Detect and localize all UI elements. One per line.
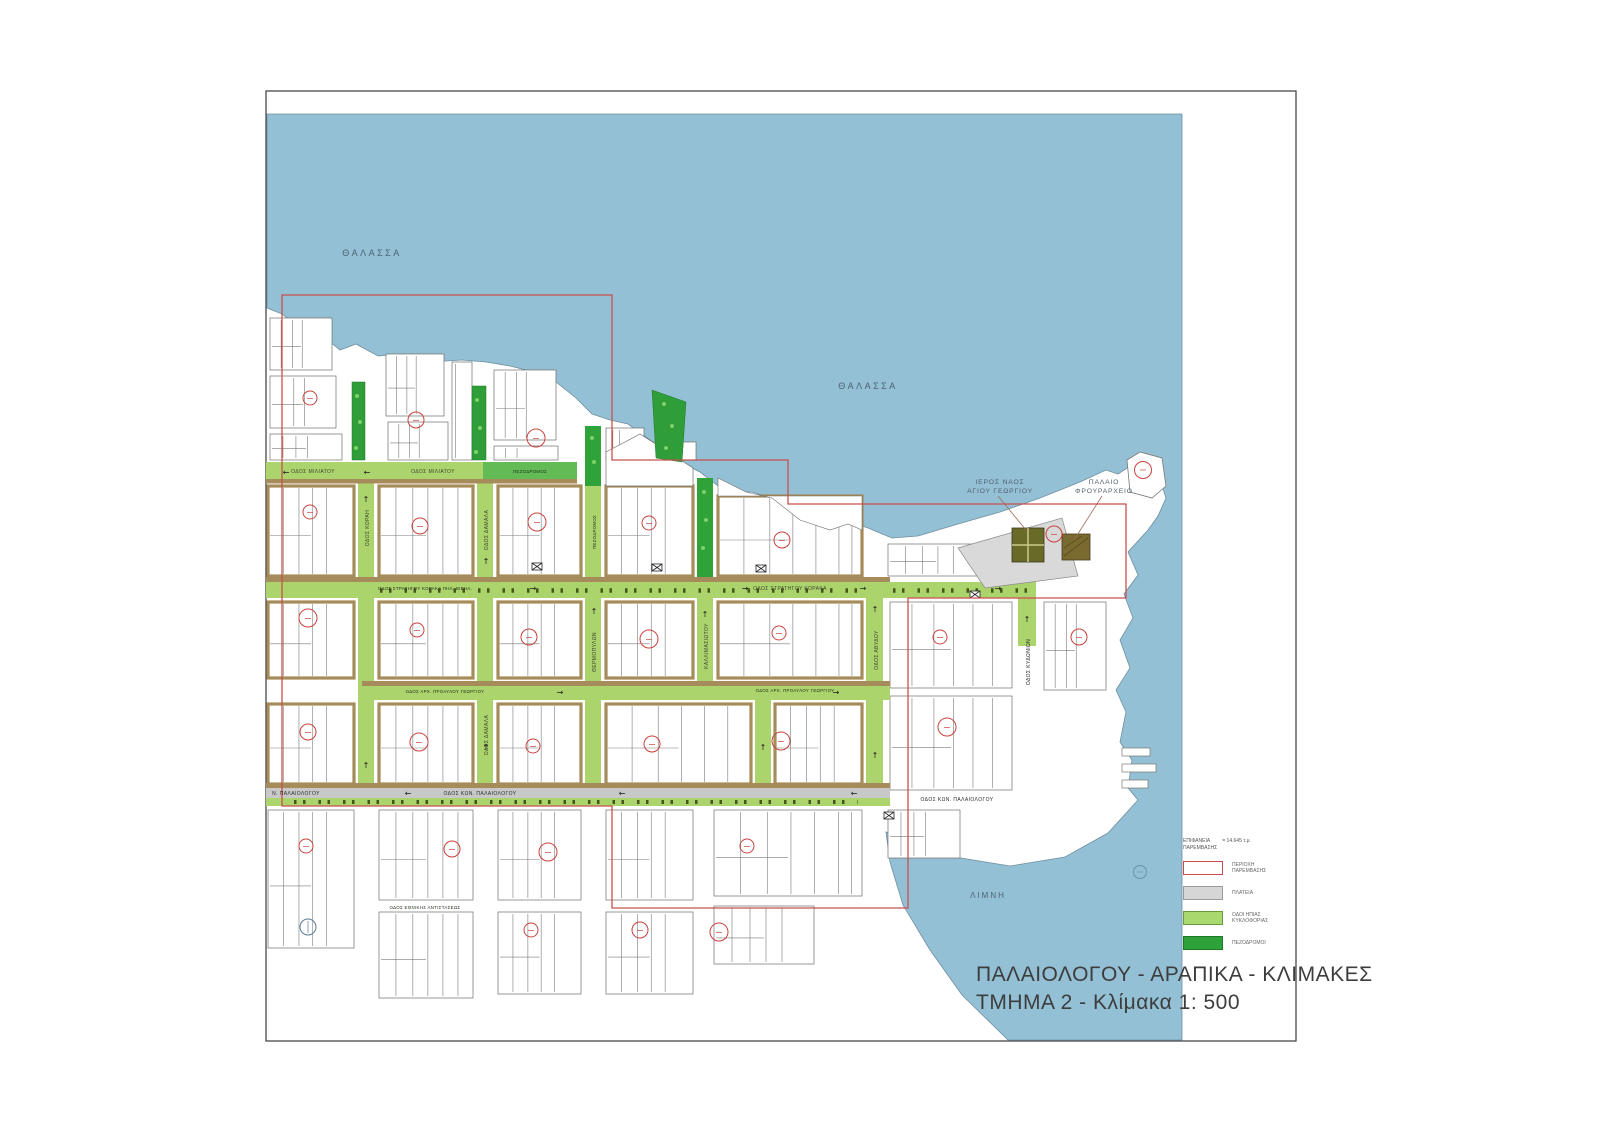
arrow-up-icon: ↑ [363,495,370,504]
arrow-up-icon: ↑ [591,607,598,616]
arrow-up-icon: ↑ [483,557,490,566]
street-label-palaiologou-left: Ν. ΠΑΛΑΙΟΛΟΓΟΥ [272,791,320,797]
street-label-damala-1: ΟΔΟΣ ΔΑΜΑΛΑ [484,510,490,551]
arrow-right-icon: → [557,688,564,697]
legend-swatch-plaza [1183,886,1223,900]
legend-label: ΠΑΡΕΜΒΑΣΗΣ [1232,868,1266,875]
guardhouse-label-line2: ΦΡΟΥΡΑΡΧΕΙΟ [1075,488,1133,495]
arrow-left-icon: ← [283,468,290,477]
arrow-left-icon: ← [619,789,626,798]
harbor-label: ΛΙΜΝΗ [970,891,1006,900]
drawing-title-line2: ΤΜΗΜΑ 2 - Κλίμακα 1: 500 [976,989,1373,1017]
street-label-kydonion: ΟΔΟΣ ΚΥΔΩΝΙΩΝ [1026,639,1032,685]
legend-header: ΕΠΙΦΑΝΕΙΑ ΠΑΡΕΜΒΑΣΗΣ = 14.645 τ.μ. [1183,838,1301,851]
street-label-georgiou-2: ΟΔΟΣ ΑΡΧ. ΠΡΟΑΥΛΟΥ ΓΕΩΡΓΙΟΥ [756,688,835,693]
legend: ΕΠΙΦΑΝΕΙΑ ΠΑΡΕΜΒΑΣΗΣ = 14.645 τ.μ. ΠΕΡΙΟ… [1183,838,1301,961]
arrow-up-icon: ↑ [872,605,879,614]
street-label-palaiologou-mid: ΟΔΟΣ ΚΩΝ. ΠΑΛΑΙΟΛΟΓΟΥ [444,791,517,797]
street-label-koraka-2: ΟΔΟΣ ΣΤΡΑΤΗΓΟΥ ΚΟΡΑΚΑ [753,586,827,592]
legend-swatch-calm-roads [1183,911,1223,925]
guardhouse-label-line1: ΠΑΛΑΙΟ [1089,479,1120,486]
street-label-damala-2: ΟΔΟΣ ΔΑΜΑΛΑ [484,715,490,756]
legend-header-line2: ΠΑΡΕΜΒΑΣΗΣ [1183,845,1217,852]
legend-swatch-pedestrian [1183,936,1223,950]
street-label-avydou: ΟΔΟΣ ΑΒΥΔΟΥ [874,630,880,670]
legend-item-plaza: ΠΛΑΤΕΙΑ [1183,886,1301,900]
arrow-up-icon: ↑ [1024,615,1031,624]
street-label-palaiologou-right: ΟΔΟΣ ΚΩΝ. ΠΑΛΑΙΟΛΟΓΟΥ [921,797,994,803]
arrow-up-icon: ↑ [702,610,709,619]
arrow-up-icon: ↑ [760,743,767,752]
arrow-left-icon: ← [364,468,371,477]
arrow-left-icon: ← [851,789,858,798]
street-label-koraka-1: ΟΔΟΣ ΣΤΡΑΤΗΓΟΥ ΚΟΡΑΚΑ ΠΗΛ. ΒΙΒΗΛ. [378,586,472,591]
legend-label: ΠΛΑΤΕΙΑ [1232,890,1253,897]
street-label-south: ΟΔΟΣ ΕΘΝΙΚΗΣ ΑΝΤΙΣΤΑΣΕΩΣ [390,905,461,910]
legend-header-value: = 14.645 τ.μ. [1222,838,1251,851]
street-label-miliatou-1: ΟΔΟΣ ΜΙΛΙΑΤΟΥ [291,469,335,475]
street-label-miliatou-2: ΟΔΟΣ ΜΙΛΙΑΤΟΥ [411,469,455,475]
pedestrian-way-north [585,426,601,486]
street-label-pezodromos-top: ΠΕΖΟΔΡΟΜΟΣ [513,469,547,474]
street-label-georgiou-1: ΟΔΟΣ ΑΡΧ. ΠΡΟΑΥΛΟΥ ΓΕΩΡΓΙΟΥ [406,689,485,694]
arrow-up-icon: ↑ [363,761,370,770]
church-label-line1: ΙΕΡΟΣ ΝΑΟΣ [975,479,1024,486]
arrow-right-icon: → [530,584,537,593]
street-palaiologou-gray [266,788,890,798]
legend-label: ΠΕΖΟΔΡΟΜΟΙ [1232,940,1266,947]
plan-sheet-page: ← ← → → → → → → ← ← ← ↑ ↑ ↑ ↑ ↑ ↑ ↑ ↑ ↑ … [0,0,1600,1132]
legend-item-intervention-area: ΠΕΡΙΟΧΗ ΠΑΡΕΜΒΑΣΗΣ [1183,861,1301,875]
legend-swatch-intervention-area [1183,861,1223,875]
arrow-right-icon: → [995,584,1002,593]
sea-label-ne: ΘΑΛΑΣΣΑ [838,381,898,391]
legend-label: ΚΥΚΛΟΦΟΡΙΑΣ [1232,918,1268,925]
legend-item-pedestrian: ΠΕΖΟΔΡΟΜΟΙ [1183,936,1301,950]
arrow-up-icon: ↑ [872,751,879,760]
street-label-korai: ΟΔΟΣ ΚΟΡΑΗ [365,510,371,546]
arrow-right-icon: → [742,584,749,593]
arrow-left-icon: ← [405,789,412,798]
street-label-thermopylon: ΘΕΡΜΟΠΥΛΩΝ [592,632,598,672]
drawing-title: ΠΑΛΑΙΟΛΟΓΟΥ - ΑΡΑΠΙΚΑ - ΚΛΙΜΑΚΕΣ ΤΜΗΜΑ 2… [976,961,1373,1018]
church-label-line2: ΑΓΙΟΥ ΓΕΩΡΓΙΟΥ [967,488,1033,495]
street-label-pezodromos-v: ΠΕΖΟΔΡΟΜΟΣ [592,515,597,549]
sea-label-nw: ΘΑΛΑΣΣΑ [342,248,402,258]
drawing-title-line1: ΠΑΛΑΙΟΛΟΓΟΥ - ΑΡΑΠΙΚΑ - ΚΛΙΜΑΚΕΣ [976,961,1373,989]
arrow-right-icon: → [860,584,867,593]
street-palaiologou-green [266,798,890,806]
legend-item-calm-roads: ΟΔΟΙ ΗΠΙΑΣ ΚΥΚΛΟΦΟΡΙΑΣ [1183,911,1301,925]
street-label-kallimasiotou: ΚΑΛΛΙΜΑΣΙΩΤΟΥ [704,623,710,669]
